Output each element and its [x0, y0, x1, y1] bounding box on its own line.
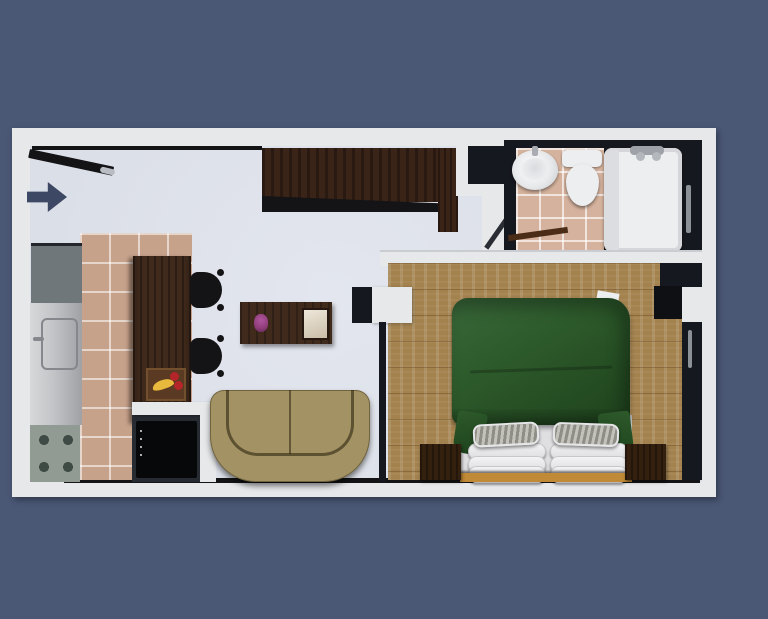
tv-screen [136, 421, 197, 478]
sofa-cushion-divider [289, 390, 291, 454]
window-handle [688, 330, 692, 368]
bathtub-rim [604, 150, 619, 250]
top-wall-inner-edge [32, 146, 262, 150]
window-niche [682, 287, 702, 322]
flower-vase [254, 314, 268, 332]
fridge-handle-bar [33, 337, 44, 341]
nightstand [625, 444, 666, 480]
dresser [654, 286, 682, 319]
red-fruit [174, 381, 183, 390]
bathtub-knob [636, 152, 645, 161]
fridge-handle [41, 318, 78, 370]
striped-pillow [472, 421, 539, 447]
nightstand [420, 444, 461, 480]
bed-green-duvet [452, 298, 630, 425]
serving-tray [302, 308, 329, 340]
wardrobe-side-unit [438, 148, 458, 232]
partition-wall-cap [372, 287, 412, 323]
stove-cooktop [30, 425, 80, 482]
striped-pillow [553, 422, 620, 447]
sink-basin [521, 158, 549, 180]
window [682, 322, 702, 480]
towel-rail [686, 185, 691, 233]
bathroom-door-opening [468, 146, 504, 184]
kitchen-counter [31, 243, 82, 306]
bed-headboard-frame [460, 473, 632, 482]
sofa [210, 390, 370, 482]
floor-plan-render [0, 0, 768, 619]
bedroom-partition-wall [379, 322, 386, 482]
sink-faucet [532, 146, 538, 156]
partition-post [352, 287, 372, 323]
wardrobe [262, 148, 458, 202]
red-fruit [170, 372, 179, 381]
bathtub-knob [652, 152, 661, 161]
bedroom-corner-wall [660, 263, 702, 288]
